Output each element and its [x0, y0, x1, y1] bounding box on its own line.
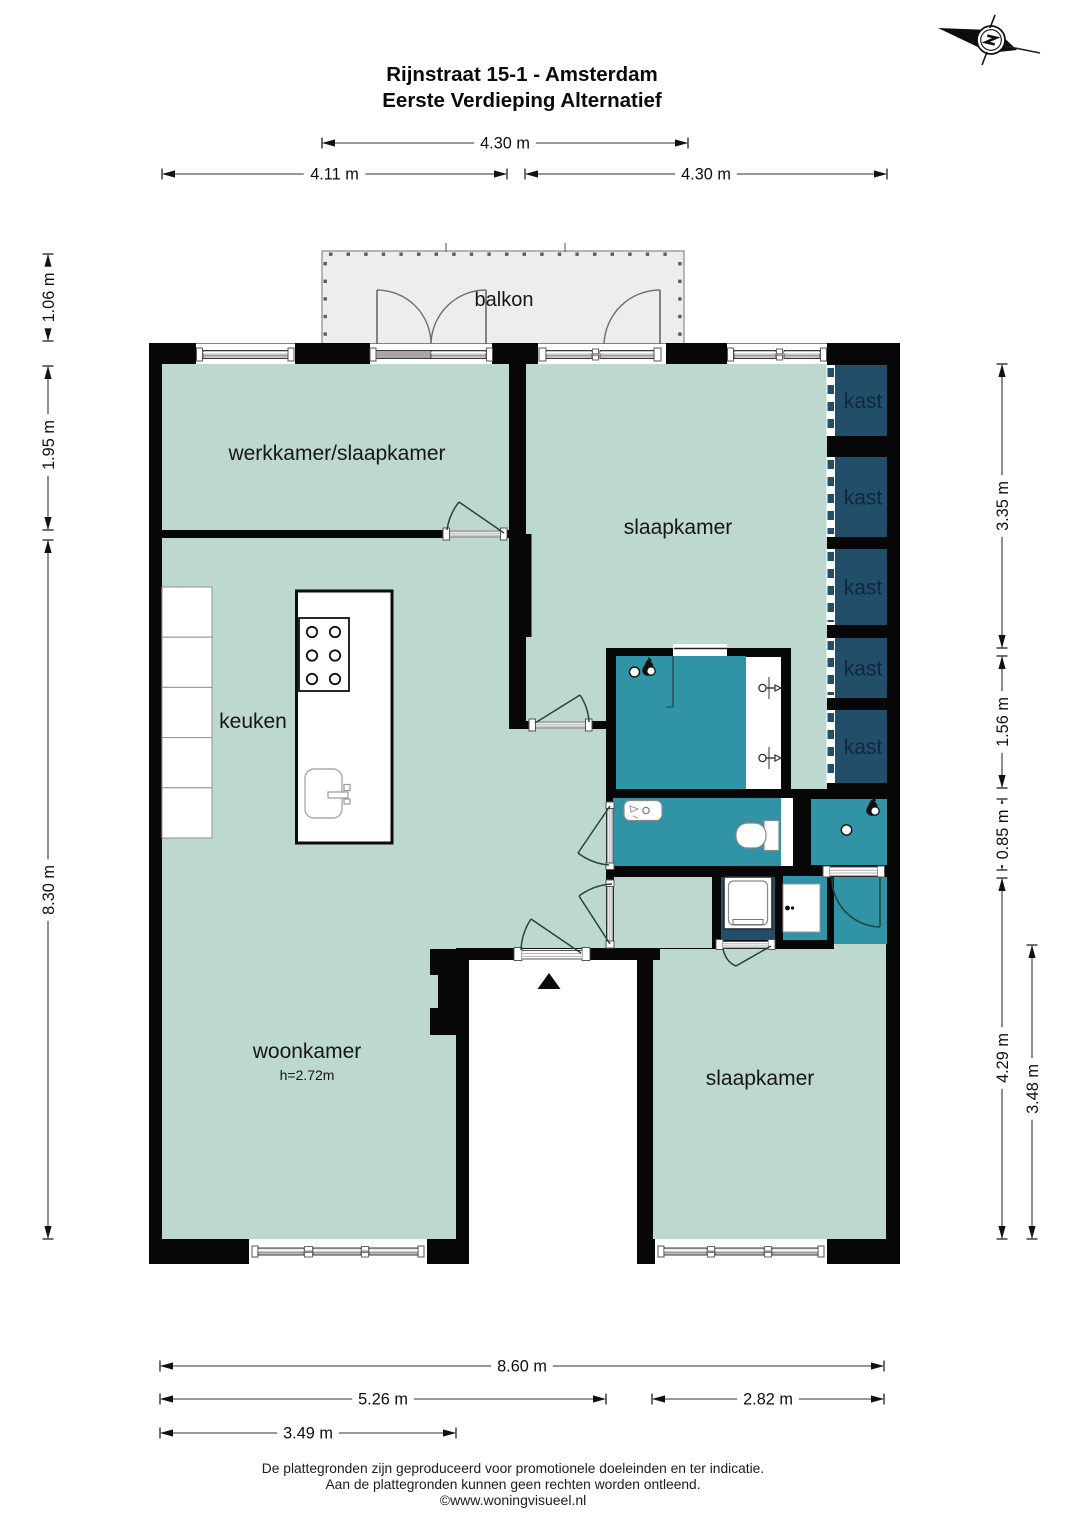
svg-text:werkkamer/slaapkamer: werkkamer/slaapkamer — [227, 442, 445, 465]
svg-text:keuken: keuken — [219, 710, 287, 733]
svg-text:0.85 m: 0.85 m — [994, 810, 1012, 860]
svg-text:Aan de plattegronden kunnen ge: Aan de plattegronden kunnen geen rechten… — [325, 1477, 700, 1492]
svg-text:slaapkamer: slaapkamer — [624, 516, 733, 539]
svg-text:1.06 m: 1.06 m — [40, 273, 58, 323]
svg-text:8.60 m: 8.60 m — [497, 1358, 547, 1376]
svg-text:4.30 m: 4.30 m — [681, 166, 731, 184]
svg-text:2.82 m: 2.82 m — [743, 1391, 793, 1409]
svg-text:kast: kast — [844, 487, 883, 510]
svg-text:3.49 m: 3.49 m — [283, 1425, 333, 1443]
svg-text:De plattegronden zijn geproduc: De plattegronden zijn geproduceerd voor … — [262, 1461, 764, 1476]
svg-text:Rijnstraat 15-1 - Amsterdam: Rijnstraat 15-1 - Amsterdam — [386, 63, 658, 86]
svg-text:4.11 m: 4.11 m — [310, 166, 359, 184]
svg-text:kast: kast — [844, 736, 883, 759]
svg-text:8.30 m: 8.30 m — [40, 865, 58, 915]
svg-text:1.56 m: 1.56 m — [994, 697, 1012, 747]
svg-text:1.95 m: 1.95 m — [40, 420, 58, 470]
svg-text:4.30 m: 4.30 m — [480, 135, 530, 153]
svg-text:©www.woningvisueel.nl: ©www.woningvisueel.nl — [440, 1492, 587, 1508]
svg-text:h=2.72m: h=2.72m — [280, 1067, 335, 1083]
svg-text:slaapkamer: slaapkamer — [706, 1067, 815, 1090]
svg-text:kast: kast — [844, 577, 883, 600]
svg-text:balkon: balkon — [475, 289, 534, 311]
svg-text:4.29 m: 4.29 m — [994, 1033, 1012, 1083]
svg-text:3.48 m: 3.48 m — [1024, 1064, 1042, 1114]
svg-text:woonkamer: woonkamer — [252, 1040, 362, 1063]
svg-text:kast: kast — [844, 390, 883, 413]
svg-text:kast: kast — [844, 658, 883, 681]
svg-text:Eerste Verdieping Alternatief: Eerste Verdieping Alternatief — [382, 89, 662, 112]
svg-text:3.35 m: 3.35 m — [994, 481, 1012, 531]
svg-text:5.26 m: 5.26 m — [358, 1391, 408, 1409]
